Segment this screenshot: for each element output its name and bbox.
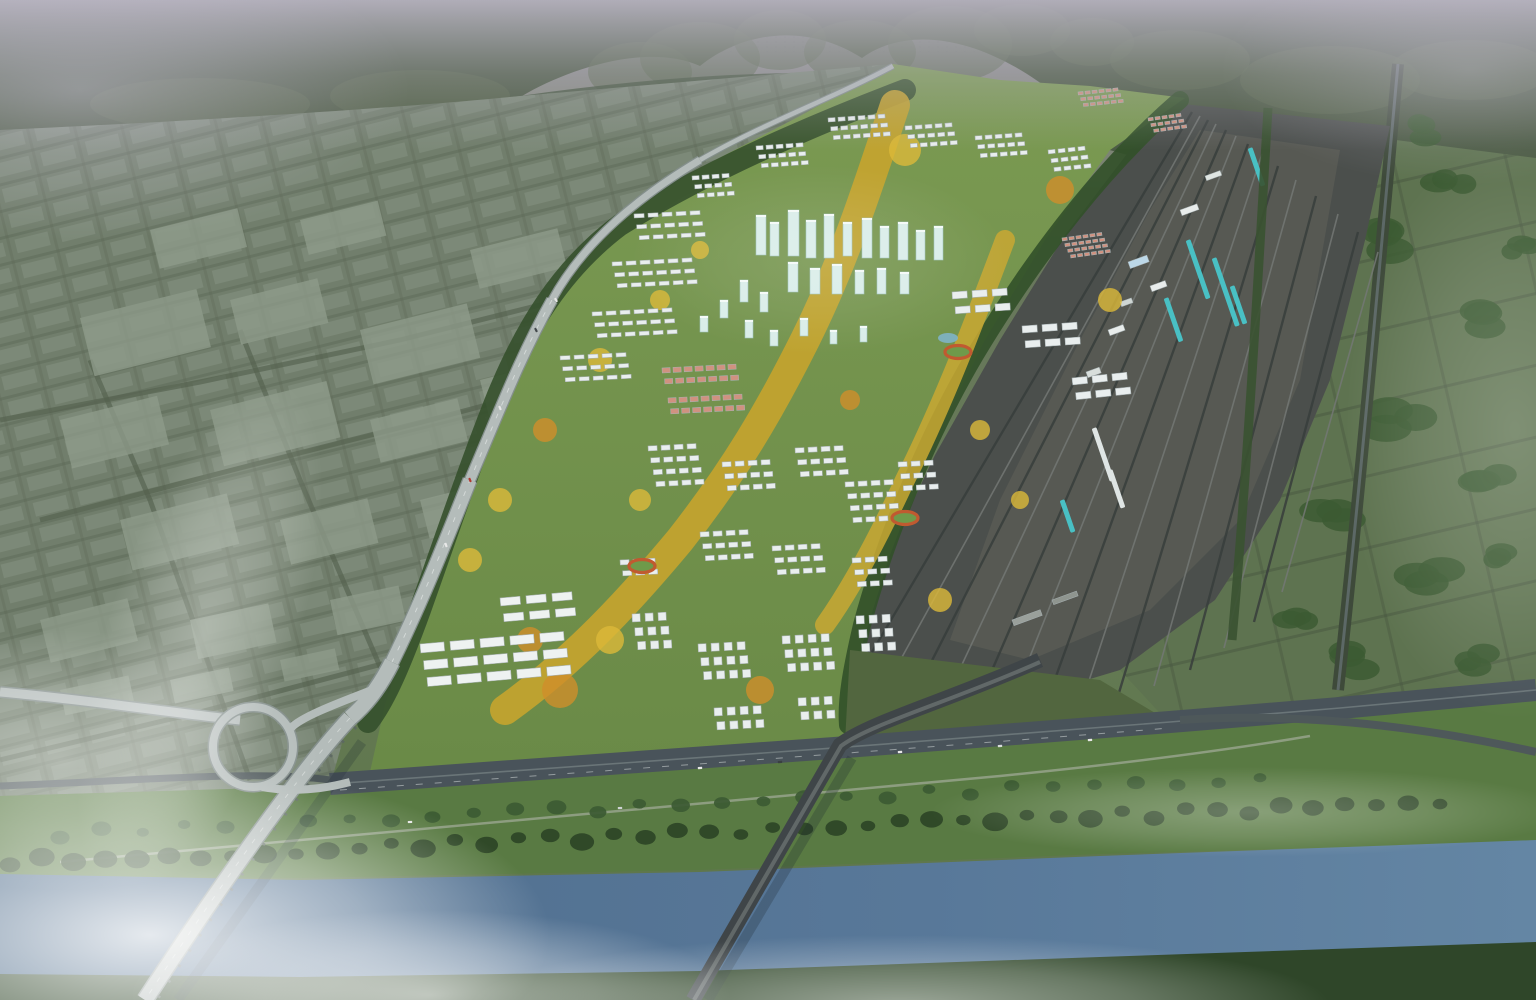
bank-tree — [699, 825, 719, 839]
building — [737, 642, 745, 650]
tree-cluster — [1272, 611, 1305, 629]
building — [813, 471, 822, 476]
building — [667, 330, 677, 335]
building — [759, 154, 766, 158]
building — [632, 614, 640, 622]
building — [795, 635, 803, 643]
building — [790, 569, 799, 574]
building — [753, 484, 762, 489]
building — [727, 656, 735, 664]
building — [995, 303, 1010, 311]
bank-tree — [605, 828, 622, 840]
building — [574, 355, 584, 360]
building — [1095, 245, 1100, 249]
building — [563, 366, 573, 371]
building — [779, 153, 786, 157]
building — [769, 154, 776, 158]
building — [827, 710, 835, 718]
building — [500, 596, 521, 606]
building — [824, 647, 832, 655]
building — [725, 406, 733, 411]
building — [729, 542, 738, 547]
building — [648, 627, 656, 635]
building — [664, 457, 673, 462]
building — [669, 480, 678, 485]
building — [869, 615, 877, 623]
building — [785, 545, 794, 550]
bank-tree — [840, 792, 853, 801]
building — [795, 448, 804, 453]
building — [751, 472, 760, 477]
building — [605, 364, 615, 369]
building — [510, 634, 535, 645]
building — [645, 613, 653, 621]
building — [739, 529, 748, 534]
building — [487, 670, 512, 681]
building — [635, 627, 643, 635]
building — [980, 153, 987, 157]
building — [743, 720, 751, 728]
building — [740, 706, 748, 714]
scene-canvas — [0, 0, 1536, 1000]
building — [651, 457, 660, 462]
building — [808, 634, 816, 642]
building — [698, 644, 706, 652]
building — [789, 152, 796, 156]
building — [929, 484, 938, 489]
bank-tree — [891, 814, 909, 827]
building — [679, 468, 688, 473]
building — [1054, 167, 1061, 172]
building — [543, 648, 568, 659]
building — [990, 152, 997, 156]
building — [677, 456, 686, 461]
building — [889, 503, 898, 508]
building — [837, 457, 846, 462]
autumn-trees — [596, 626, 624, 654]
building — [728, 364, 736, 369]
bank-tree — [467, 808, 481, 818]
building — [588, 354, 598, 359]
building — [1097, 232, 1102, 236]
building-cluster — [856, 614, 896, 652]
bank-tree — [879, 792, 897, 805]
building — [1051, 158, 1058, 163]
building — [671, 408, 679, 413]
building — [1065, 243, 1070, 247]
building — [665, 378, 673, 383]
autumn-trees — [629, 489, 651, 511]
building — [742, 669, 750, 677]
building — [703, 543, 712, 548]
building — [1086, 240, 1091, 244]
autumn-trees — [970, 420, 990, 440]
bank-tree — [506, 803, 524, 816]
building — [814, 711, 822, 719]
pond — [938, 333, 958, 343]
bank-tree — [714, 797, 730, 809]
car — [698, 767, 703, 770]
building — [1102, 244, 1107, 248]
building — [623, 570, 632, 575]
building — [1115, 387, 1131, 396]
building — [874, 492, 883, 497]
building — [736, 405, 744, 410]
building — [698, 377, 706, 382]
car — [898, 751, 903, 754]
building — [761, 163, 768, 167]
building — [1064, 166, 1071, 171]
building-cluster — [632, 612, 672, 650]
building — [826, 661, 834, 669]
autumn-trees — [1011, 491, 1029, 509]
building — [592, 311, 602, 316]
bank-tree — [547, 800, 567, 814]
building — [798, 698, 806, 706]
building — [1068, 249, 1073, 253]
building — [615, 272, 625, 277]
building — [701, 657, 709, 665]
building-cluster — [852, 556, 892, 587]
building — [577, 366, 587, 371]
building — [866, 516, 875, 521]
building — [1099, 238, 1104, 242]
building — [591, 365, 601, 370]
building — [727, 707, 735, 715]
building — [730, 375, 738, 380]
building — [826, 470, 835, 475]
building — [616, 353, 626, 358]
building — [602, 353, 612, 358]
building — [1076, 391, 1092, 400]
building — [803, 568, 812, 573]
building — [648, 309, 658, 314]
building — [857, 581, 866, 586]
building — [798, 649, 806, 657]
building — [1093, 239, 1098, 243]
building — [722, 462, 731, 467]
building — [1062, 237, 1067, 241]
building — [816, 567, 825, 572]
bank-tree — [667, 823, 688, 838]
building — [1095, 389, 1111, 398]
building — [861, 643, 869, 651]
building — [865, 557, 874, 562]
building — [724, 642, 732, 650]
building — [852, 558, 861, 563]
building — [748, 460, 757, 465]
building — [781, 162, 788, 166]
building — [782, 636, 790, 644]
building — [637, 641, 645, 649]
building — [1022, 325, 1037, 333]
building — [1072, 242, 1077, 246]
building — [607, 375, 617, 380]
building — [552, 592, 573, 602]
bank-tree — [570, 833, 594, 850]
building — [766, 483, 775, 488]
building — [1020, 150, 1027, 154]
building — [483, 653, 508, 664]
building — [808, 447, 817, 452]
building — [609, 322, 619, 327]
building — [715, 406, 723, 411]
building — [753, 706, 761, 714]
building — [679, 397, 687, 402]
building — [695, 366, 703, 371]
building — [702, 175, 709, 179]
building — [1072, 376, 1088, 385]
building — [617, 283, 627, 288]
building — [801, 711, 809, 719]
building — [868, 569, 877, 574]
building — [813, 662, 821, 670]
building — [682, 408, 690, 413]
building — [870, 581, 879, 586]
building — [706, 365, 714, 370]
car — [778, 761, 783, 764]
building — [663, 640, 671, 648]
building — [714, 657, 722, 665]
building — [674, 444, 683, 449]
building — [788, 557, 797, 562]
building — [1079, 241, 1084, 245]
building — [612, 261, 622, 266]
building — [662, 368, 670, 373]
building — [1074, 165, 1081, 170]
building — [811, 459, 820, 464]
building — [692, 176, 699, 180]
building — [457, 673, 482, 684]
building — [777, 569, 786, 574]
building — [883, 580, 892, 585]
building — [772, 546, 781, 551]
bank-tree — [861, 821, 875, 831]
building — [775, 557, 784, 562]
building — [701, 396, 709, 401]
building — [1084, 252, 1089, 256]
building — [661, 445, 670, 450]
building — [887, 642, 895, 650]
building — [738, 473, 747, 478]
building — [687, 443, 696, 448]
building — [719, 376, 727, 381]
autumn-trees — [840, 390, 860, 410]
building — [653, 469, 662, 474]
building — [839, 469, 848, 474]
building — [1084, 164, 1091, 169]
building — [799, 152, 806, 156]
building — [1077, 253, 1082, 257]
autumn-trees — [488, 488, 512, 512]
building — [712, 174, 719, 178]
bank-tree — [541, 829, 560, 842]
building — [876, 504, 885, 509]
building — [704, 407, 712, 412]
building — [911, 461, 920, 466]
building — [648, 446, 657, 451]
bank-tree — [671, 799, 690, 812]
building — [453, 656, 478, 667]
bank-tree — [589, 806, 606, 818]
building — [824, 696, 832, 704]
bank-tree — [757, 796, 771, 806]
building — [863, 505, 872, 510]
building — [800, 663, 808, 671]
building — [546, 665, 571, 676]
building — [887, 491, 896, 496]
building — [821, 634, 829, 642]
building — [611, 333, 621, 338]
building-cluster — [898, 460, 938, 491]
building — [423, 659, 448, 670]
building — [798, 459, 807, 464]
building — [787, 663, 795, 671]
car — [618, 807, 623, 809]
building — [716, 543, 725, 548]
building — [723, 395, 731, 400]
building — [901, 473, 910, 478]
building — [1083, 234, 1088, 238]
building — [1091, 251, 1096, 255]
building — [1112, 372, 1128, 381]
car — [1088, 739, 1093, 742]
building — [801, 556, 810, 561]
building — [924, 460, 933, 465]
building — [903, 485, 912, 490]
building — [1010, 151, 1017, 155]
building — [1098, 250, 1103, 254]
building — [785, 649, 793, 657]
building — [529, 610, 550, 620]
building — [729, 670, 737, 678]
building — [513, 651, 538, 662]
building — [885, 628, 893, 636]
building — [595, 322, 605, 327]
cbd-glow — [630, 165, 1010, 355]
building — [668, 398, 676, 403]
building — [1081, 247, 1086, 251]
building — [427, 675, 452, 686]
bank-tree — [511, 832, 526, 843]
building — [718, 555, 727, 560]
building — [684, 366, 692, 371]
building — [621, 374, 631, 379]
building — [650, 319, 660, 324]
bank-tree — [825, 820, 847, 836]
building — [682, 480, 691, 485]
building — [761, 459, 770, 464]
autumn-trees — [1046, 176, 1074, 204]
building — [555, 607, 576, 617]
building — [661, 626, 669, 634]
building — [859, 629, 867, 637]
building — [881, 568, 890, 573]
running-track — [892, 512, 918, 525]
bank-tree — [633, 799, 647, 809]
building — [821, 446, 830, 451]
building — [639, 331, 649, 336]
building — [1075, 248, 1080, 252]
building — [1088, 246, 1093, 250]
building — [853, 517, 862, 522]
building — [1025, 340, 1040, 348]
building — [1000, 152, 1007, 156]
autumn-trees — [746, 676, 774, 704]
building — [725, 473, 734, 478]
building — [727, 485, 736, 490]
building — [884, 479, 893, 484]
building — [731, 554, 740, 559]
building — [845, 482, 854, 487]
building — [734, 394, 742, 399]
building — [700, 532, 709, 537]
building — [914, 473, 923, 478]
car — [998, 745, 1003, 748]
building — [871, 480, 880, 485]
building — [811, 543, 820, 548]
building — [593, 376, 603, 381]
building — [618, 363, 628, 368]
autumn-trees — [928, 588, 952, 612]
building — [606, 311, 616, 316]
building — [709, 376, 717, 381]
autumn-trees — [542, 672, 578, 708]
building — [1062, 322, 1077, 330]
building — [623, 321, 633, 326]
autumn-trees — [1098, 288, 1122, 312]
building — [872, 629, 880, 637]
building — [1092, 374, 1108, 383]
building — [716, 671, 724, 679]
building — [717, 721, 725, 729]
building — [658, 612, 666, 620]
building — [882, 614, 890, 622]
bank-tree — [734, 829, 749, 840]
building — [1076, 235, 1081, 239]
building — [620, 310, 630, 315]
building — [791, 161, 798, 165]
building — [1045, 338, 1060, 346]
building — [742, 541, 751, 546]
building — [540, 631, 565, 642]
building — [705, 555, 714, 560]
building — [1042, 324, 1057, 332]
building — [713, 531, 722, 536]
building — [650, 641, 658, 649]
building — [764, 471, 773, 476]
building — [811, 648, 819, 656]
building — [503, 612, 524, 622]
building — [666, 469, 675, 474]
running-track — [629, 560, 655, 573]
building — [560, 355, 570, 360]
building — [1105, 249, 1110, 253]
building — [856, 616, 864, 624]
building — [744, 553, 753, 558]
building — [824, 458, 833, 463]
building — [565, 377, 575, 382]
autumn-trees — [533, 418, 557, 442]
building — [858, 481, 867, 486]
bank-tree — [635, 830, 655, 845]
building — [878, 556, 887, 561]
building — [798, 544, 807, 549]
building — [1065, 337, 1080, 345]
running-track — [945, 346, 971, 359]
building — [420, 642, 445, 653]
building — [480, 637, 505, 648]
